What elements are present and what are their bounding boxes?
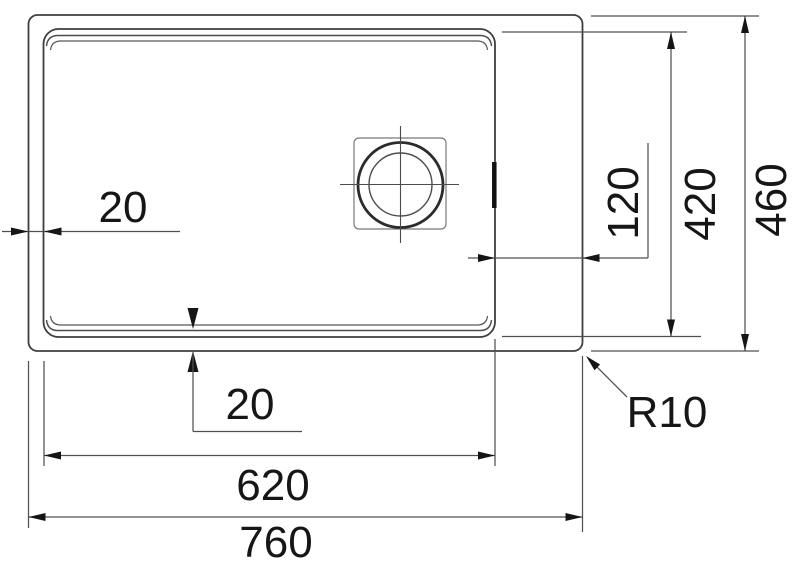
- dim-label-rim-offset-left: 20: [99, 183, 148, 232]
- technical-drawing-canvas: 20 20 620 760 120: [0, 0, 792, 578]
- dim-label-bowl-width: 620: [236, 461, 309, 510]
- dim-label-bowl-depth: 420: [676, 167, 725, 240]
- dim-label-corner-radius: R10: [627, 388, 708, 437]
- drawing-background: [0, 0, 792, 578]
- dim-label-bowl-right-offset: 120: [599, 166, 648, 239]
- sink-dimension-drawing: 20 20 620 760 120: [0, 0, 792, 578]
- dim-label-rim-offset-bottom: 20: [226, 380, 275, 429]
- dim-label-overall-depth: 460: [747, 163, 792, 236]
- dim-label-overall-width: 760: [239, 518, 312, 567]
